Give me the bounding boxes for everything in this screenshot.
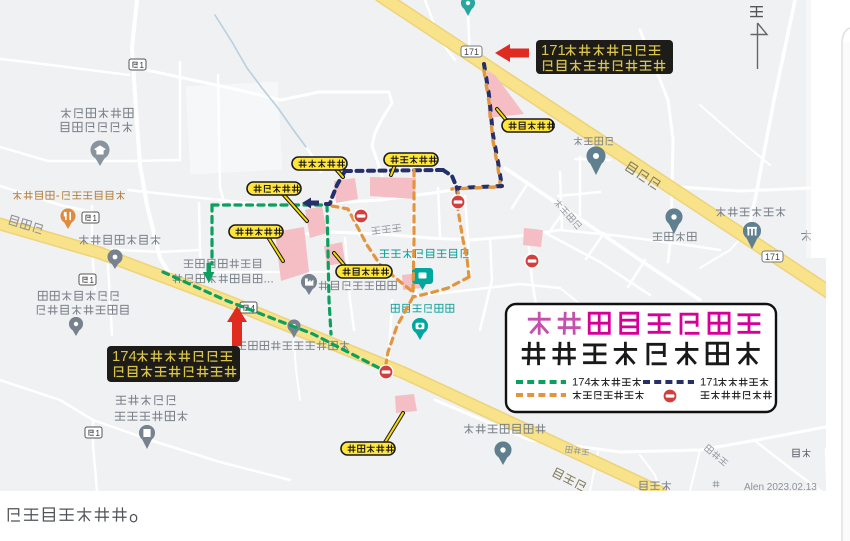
svg-text:1: 1 (93, 214, 98, 223)
svg-text:1: 1 (90, 276, 95, 285)
svg-text:1: 1 (140, 61, 145, 70)
svg-text:-: - (56, 188, 60, 202)
svg-text:171: 171 (700, 377, 719, 389)
svg-text:...: ... (264, 272, 274, 286)
svg-text:171: 171 (464, 47, 479, 57)
svg-text:171: 171 (541, 43, 566, 59)
svg-text:174: 174 (112, 349, 137, 365)
svg-text:1: 1 (96, 429, 101, 438)
svg-text:174: 174 (572, 377, 591, 389)
svg-text:171: 171 (765, 252, 780, 262)
